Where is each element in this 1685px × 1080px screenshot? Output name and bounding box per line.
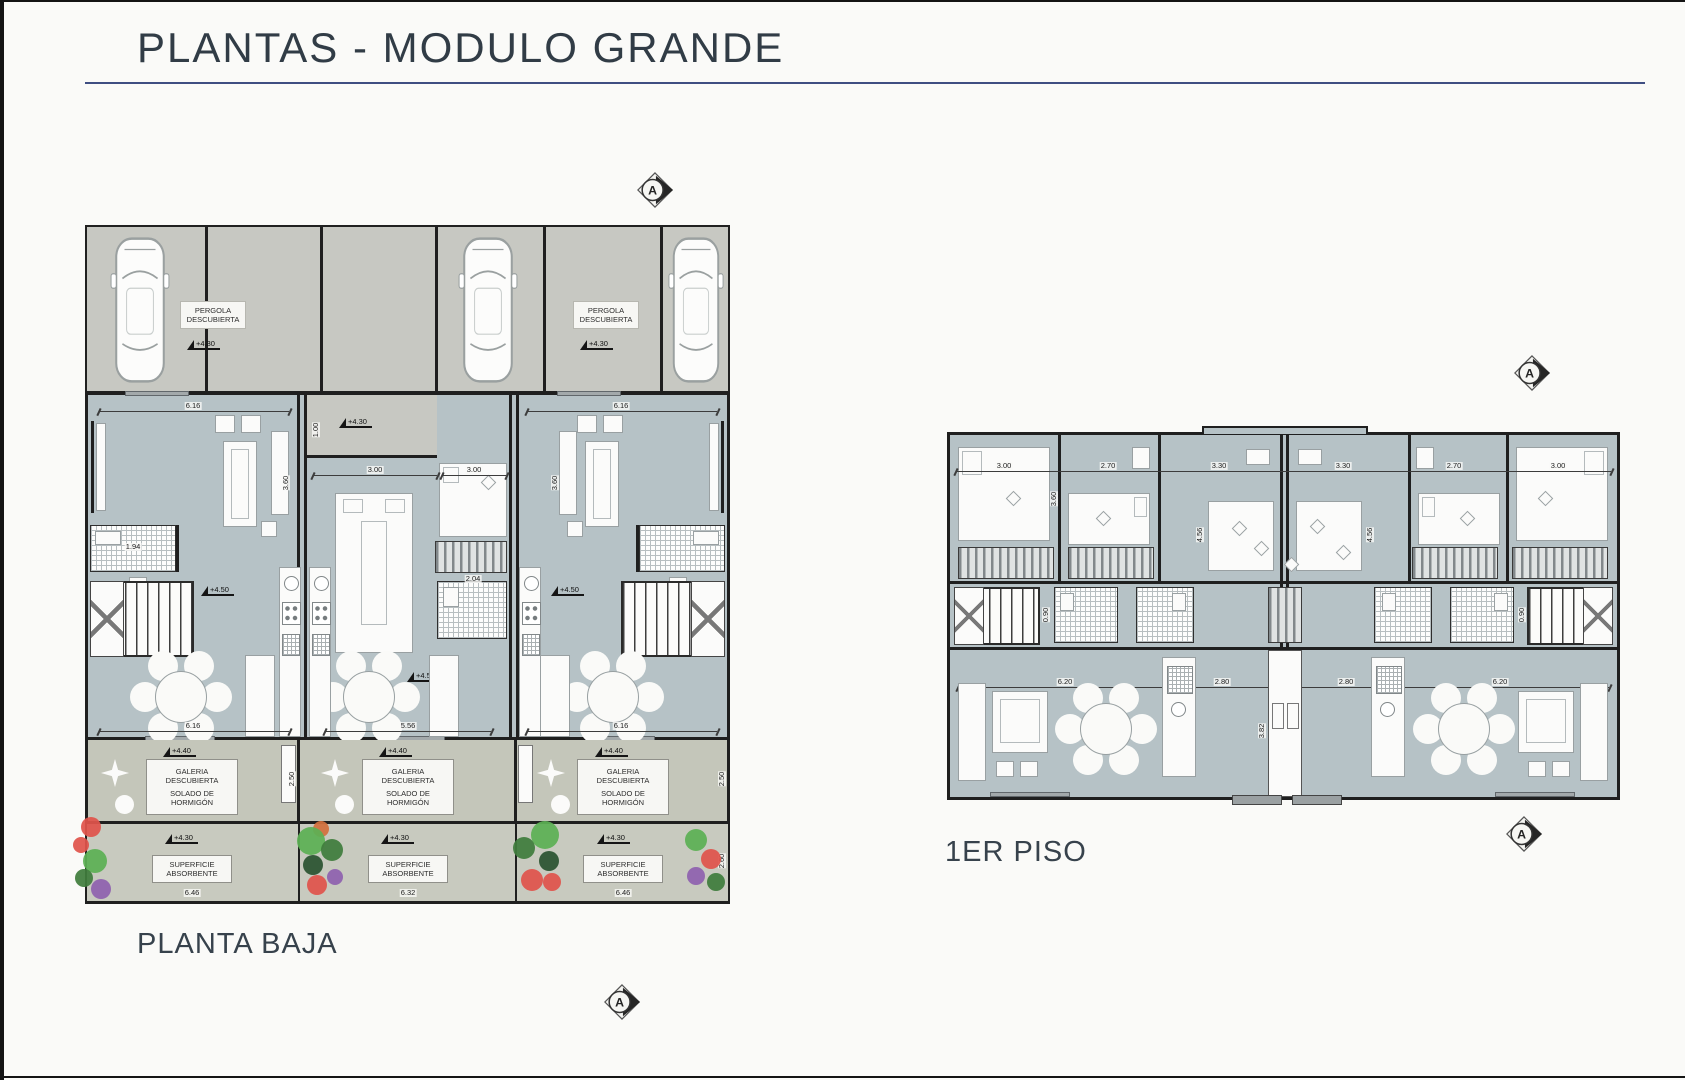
car-icon <box>109 235 171 385</box>
level-value: +4.30 <box>388 833 414 844</box>
dining-table <box>343 671 395 723</box>
stair-landing <box>90 581 124 657</box>
wall <box>176 525 179 572</box>
dining-table <box>155 671 207 723</box>
garage-partition-wall <box>660 227 663 393</box>
level-value: +4.30 <box>587 339 613 350</box>
plant-cluster <box>297 821 351 913</box>
dimension-line <box>313 475 437 476</box>
section-letter: A <box>1517 827 1526 841</box>
level-flag-icon <box>187 340 194 350</box>
car-icon <box>667 235 725 385</box>
kitchen-island <box>1371 657 1405 777</box>
section-letter: A <box>615 995 624 1009</box>
level-marker: +4.40 <box>163 744 196 757</box>
dimension-label: 1.94 <box>125 543 142 551</box>
dimension-label: 3.82 <box>1258 724 1266 739</box>
section-marker-a: A <box>636 171 674 209</box>
armchair <box>577 415 597 433</box>
seat <box>385 499 405 513</box>
dimension-label: 3.60 <box>282 476 290 491</box>
sink-icon <box>524 576 539 591</box>
sofa <box>559 431 577 515</box>
dimension-label: 3.00 <box>367 466 384 474</box>
dining-table <box>587 671 639 723</box>
stove-icon <box>312 602 331 625</box>
level-marker: +4.30 <box>165 831 198 844</box>
closet <box>1412 547 1498 579</box>
dimension-label: 2.80 <box>1338 678 1355 686</box>
wall <box>85 393 88 740</box>
kitchen-counter <box>309 567 331 737</box>
dimension-label: 6.16 <box>185 402 202 410</box>
coffee-table <box>1552 761 1570 777</box>
galeria-label: GALERIA DESCUBIERTA SOLADO DE HORMIGÓN <box>362 759 454 815</box>
absorbent-label: SUPERFICIE ABSORBENTE <box>152 855 232 883</box>
plan-ground: PERGOLA DESCUBIERTA +4.30 PERGOLA DESCUB… <box>85 225 730 905</box>
closet <box>435 541 507 573</box>
door <box>518 745 533 803</box>
toilet <box>1382 593 1396 611</box>
living-table <box>361 521 387 625</box>
duct <box>1268 587 1302 643</box>
pergola-label: PERGOLA DESCUBIERTA <box>180 301 246 329</box>
party-wall <box>509 393 512 740</box>
garage-partition-wall <box>320 227 323 393</box>
wall <box>727 393 730 740</box>
level-marker: +4.30 <box>381 831 414 844</box>
closet <box>958 547 1054 579</box>
dimension-label: 6.46 <box>184 889 201 897</box>
stove-icon <box>522 602 541 625</box>
kitchen-island <box>540 655 570 737</box>
toilet <box>1060 593 1074 611</box>
kitchen-island <box>1162 657 1196 777</box>
level-marker: +4.30 <box>597 831 630 844</box>
frame-edge-top <box>0 0 1685 2</box>
nightstand <box>1416 447 1434 469</box>
console <box>1298 449 1322 465</box>
level-value: +4.30 <box>172 833 198 844</box>
wall <box>85 901 730 904</box>
window <box>125 391 189 396</box>
level-value: +4.30 <box>604 833 630 844</box>
toilet <box>443 587 459 607</box>
rug <box>1296 501 1362 571</box>
section-marker-a: A <box>603 983 641 1021</box>
dimension-label: 3.00 <box>1550 462 1567 470</box>
dimension-line <box>325 731 491 732</box>
dimension-label: 2.70 <box>1100 462 1117 470</box>
dimension-line <box>442 475 506 476</box>
wall <box>1408 435 1411 583</box>
pouf <box>551 795 570 814</box>
dimension-label: 0.90 <box>1042 608 1050 623</box>
section-letter: A <box>648 183 657 197</box>
garage-partition-wall <box>543 227 546 393</box>
coffee-table <box>1020 761 1038 777</box>
balcony-tab <box>1232 795 1282 805</box>
dimension-line <box>527 731 717 732</box>
plan-ground-title: PLANTA BAJA <box>137 928 338 961</box>
nightstand <box>1132 447 1150 469</box>
dimension-label: 6.20 <box>1492 678 1509 686</box>
coffee-table <box>261 521 277 537</box>
level-marker: +4.40 <box>379 744 412 757</box>
dimension-label: 2.80 <box>1214 678 1231 686</box>
closet <box>1512 547 1608 579</box>
sink-icon <box>314 576 329 591</box>
seat <box>343 499 363 513</box>
plant-cluster <box>685 829 735 909</box>
window <box>557 391 621 396</box>
dimension-label: 6.32 <box>400 889 417 897</box>
sofa <box>1580 683 1608 781</box>
sofa <box>593 449 611 519</box>
sofa <box>231 449 249 519</box>
plant-cluster <box>513 821 567 913</box>
coffee-table <box>567 521 583 537</box>
party-wall <box>514 740 517 823</box>
pouf <box>115 795 134 814</box>
wall <box>1158 435 1161 583</box>
sink <box>693 531 719 545</box>
wall <box>85 740 88 823</box>
level-value: +4.30 <box>346 417 372 428</box>
dimension-label: 0.90 <box>1518 608 1526 623</box>
armchair <box>241 415 261 433</box>
dimension-label: 2.50 <box>718 772 726 787</box>
plan-first: 3.00 2.70 3.30 3.30 2.70 3.00 3.60 4.56 … <box>947 432 1620 800</box>
drawing-sheet: PLANTAS - MODULO GRANDE <box>0 0 1685 1080</box>
wall <box>1506 435 1509 583</box>
patio <box>307 395 437 458</box>
dimension-label: 1.00 <box>312 423 320 438</box>
level-marker: +4.40 <box>595 744 628 757</box>
car-icon <box>457 235 519 385</box>
title-rule <box>85 82 1645 84</box>
sink-icon <box>284 576 299 591</box>
galeria-label: GALERIA DESCUBIERTA SOLADO DE HORMIGÓN <box>577 759 669 815</box>
window <box>1495 792 1575 797</box>
stair-landing <box>691 581 725 657</box>
dimension-label: 6.16 <box>613 722 630 730</box>
dimension-label: 6.16 <box>613 402 630 410</box>
stair-landing <box>954 587 984 645</box>
dining-table <box>1438 703 1490 755</box>
dimension-label: 4.56 <box>1196 528 1204 543</box>
level-value: +4.50 <box>208 585 234 596</box>
core-box <box>1272 703 1284 729</box>
shelf <box>709 423 719 511</box>
dimension-label: 3.30 <box>1211 462 1228 470</box>
dimension-line <box>956 471 1611 472</box>
dimension-label: 3.00 <box>996 462 1013 470</box>
dimension-label: 3.30 <box>1335 462 1352 470</box>
kitchen-island <box>429 655 459 737</box>
plan-first-title: 1ER PISO <box>945 836 1087 869</box>
dining-table <box>1080 703 1132 755</box>
dimension-label: 4.56 <box>1366 528 1374 543</box>
wall <box>727 740 730 823</box>
armchair <box>215 415 235 433</box>
wall <box>636 525 639 572</box>
section-marker-a: A <box>1505 815 1543 853</box>
sofa <box>271 431 289 515</box>
dimension-label: 2.50 <box>288 772 296 787</box>
sofa <box>1000 699 1040 743</box>
stair-landing <box>1583 587 1613 645</box>
pouf <box>335 795 354 814</box>
level-marker: +4.50 <box>551 583 584 596</box>
sink-icon <box>1380 702 1395 717</box>
kitchen-island <box>245 655 275 737</box>
pillow <box>1134 497 1147 517</box>
dimension-label: 2.04 <box>465 575 482 583</box>
level-value: +4.40 <box>386 746 412 757</box>
counter-icon <box>1376 666 1402 694</box>
sink <box>95 531 121 545</box>
dimension-line <box>99 411 289 412</box>
core-box <box>1287 703 1299 729</box>
dimension-label: 3.60 <box>551 476 559 491</box>
level-value: +4.50 <box>558 585 584 596</box>
wall-step <box>1202 426 1368 434</box>
counter-icon <box>312 634 330 656</box>
dimension-label: 6.20 <box>1057 678 1074 686</box>
dimension-label: 6.46 <box>615 889 632 897</box>
garage-partition-wall <box>435 227 438 393</box>
level-value: +4.30 <box>194 339 220 350</box>
sofa <box>958 683 986 781</box>
counter-icon <box>1167 666 1193 694</box>
toilet <box>1494 593 1508 611</box>
closet <box>1068 547 1154 579</box>
shelf <box>96 423 106 511</box>
wall <box>950 581 1617 584</box>
toilet <box>1172 593 1186 611</box>
console <box>1246 449 1270 465</box>
party-wall <box>297 740 300 823</box>
dimension-line <box>99 731 289 732</box>
coffee-table <box>996 761 1014 777</box>
rug <box>1208 501 1274 571</box>
galeria-label: GALERIA DESCUBIERTA SOLADO DE HORMIGÓN <box>146 759 238 815</box>
balcony-tab <box>1292 795 1342 805</box>
absorbent-label: SUPERFICIE ABSORBENTE <box>583 855 663 883</box>
dimension-label: 5.56 <box>400 722 417 730</box>
level-marker: +4.30 <box>580 337 613 350</box>
kitchen-counter <box>279 567 301 737</box>
kitchen-counter <box>519 567 541 737</box>
dimension-label: 3.60 <box>1050 492 1058 507</box>
sink-icon <box>1171 702 1186 717</box>
shelf <box>91 421 94 513</box>
absorbent-label: SUPERFICIE ABSORBENTE <box>368 855 448 883</box>
coffee-table <box>1528 761 1546 777</box>
section-letter: A <box>1525 366 1534 380</box>
plant-cluster <box>73 817 123 909</box>
armchair <box>603 415 623 433</box>
window <box>990 792 1070 797</box>
level-marker: +4.30 <box>187 337 220 350</box>
level-value: +4.40 <box>602 746 628 757</box>
level-flag-icon <box>580 340 587 350</box>
page-title: PLANTAS - MODULO GRANDE <box>137 24 784 72</box>
counter-icon <box>522 634 540 656</box>
frame-edge-left <box>0 0 4 1080</box>
dimension-label: 2.70 <box>1446 462 1463 470</box>
level-value: +4.40 <box>170 746 196 757</box>
dimension-line <box>527 411 717 412</box>
shelf <box>721 421 724 513</box>
section-marker-a: A <box>1513 354 1551 392</box>
wall <box>1058 435 1061 583</box>
stove-icon <box>282 602 301 625</box>
dimension-label: 6.16 <box>185 722 202 730</box>
sofa <box>1526 699 1566 743</box>
pergola-label: PERGOLA DESCUBIERTA <box>573 301 639 329</box>
counter-icon <box>282 634 300 656</box>
level-marker: +4.30 <box>339 415 372 428</box>
level-marker: +4.50 <box>201 583 234 596</box>
frame-edge-bottom <box>0 1076 1685 1078</box>
dimension-label: 3.00 <box>466 466 483 474</box>
pillow <box>1422 497 1435 517</box>
